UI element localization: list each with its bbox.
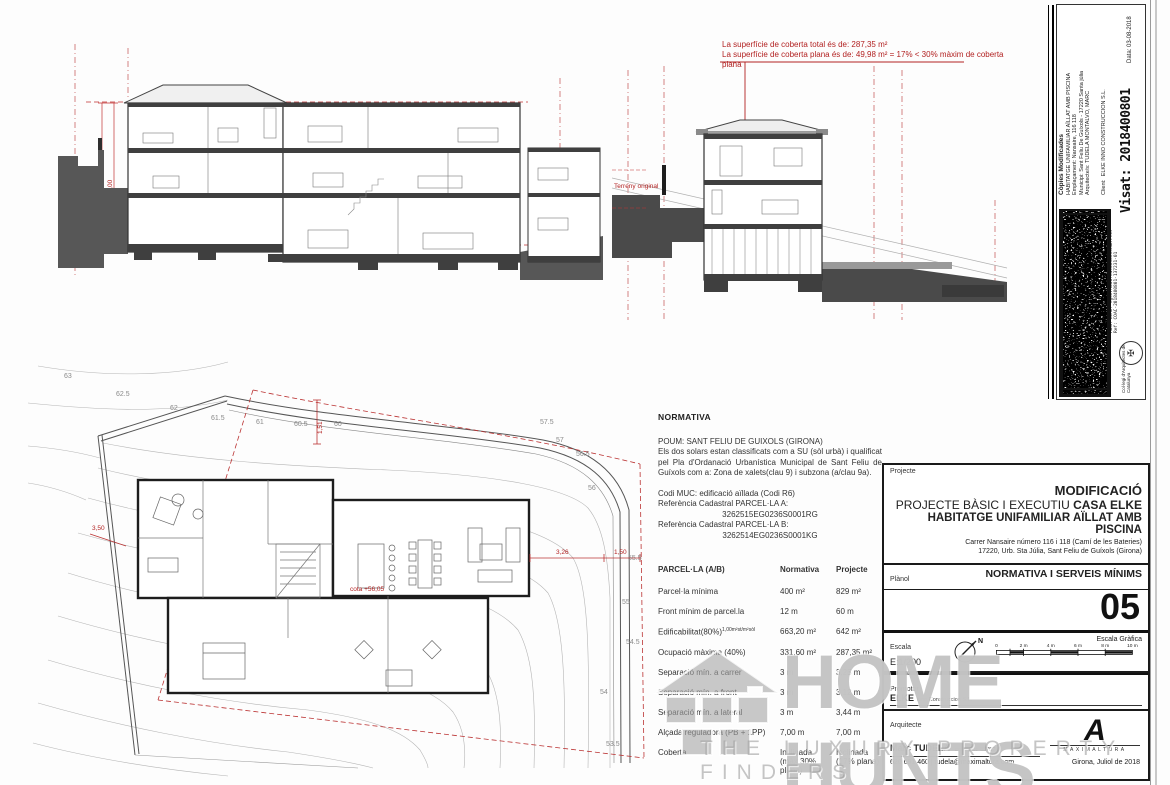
svg-text:4 m: 4 m xyxy=(1047,643,1055,649)
table-row: Ocupació màxima (40%)331,60 m²287,35 m² xyxy=(658,648,884,657)
contour-label: 61 xyxy=(256,419,264,426)
ref-cadastral-a-value: 3262515EG0236S0001RG xyxy=(658,510,882,521)
contour-label: 60 xyxy=(334,421,342,428)
section-drawing-left: ARM:7,00 AM:7,00 xyxy=(58,38,603,338)
arquitecte-contact: 620 691 460 | tudela@maximaltura.com xyxy=(890,759,1014,766)
escala-label: Escala xyxy=(890,644,911,651)
svg-text:0: 0 xyxy=(995,643,998,649)
graphic-scale-bar: 0 2 m 4 m 6 m 8 m 10 m xyxy=(990,641,1142,663)
table-row: Separació mín. a lateral3 m3,44 m xyxy=(658,708,884,717)
contour-label: 62.5 xyxy=(116,391,130,398)
sheet-border xyxy=(1155,0,1157,785)
sheet: ARM:7,00 AM:7,00 xyxy=(0,0,1170,785)
table-row: Parcel·la mínima400 m²829 m² xyxy=(658,587,884,596)
maximaltura-logo: A MAXIMALTURA xyxy=(1050,717,1140,753)
terreny-original-label: Terreny original xyxy=(614,183,659,190)
house-footprint xyxy=(138,480,529,693)
visat-info: Còpies Modificades HABITATGE UNIFAMILIAR… xyxy=(1059,13,1092,195)
contour-label: 55 xyxy=(622,599,630,606)
normativa-block: NORMATIVA POUM: SANT FELIU DE GUIXOLS (G… xyxy=(658,412,882,541)
projecte-section: Projecte MODIFICACIÓ PROJECTE BÀSIC I EX… xyxy=(884,465,1148,565)
sheet-number: 05 xyxy=(1100,586,1140,628)
title-block: Projecte MODIFICACIÓ PROJECTE BÀSIC I EX… xyxy=(882,463,1150,781)
sheet-number-section: 05 xyxy=(884,590,1148,633)
escala-section: Escala E:1/200 Escala Gràfica N xyxy=(884,633,1148,673)
coberta-line2: La superfície de coberta plana és de: 49… xyxy=(722,50,1012,70)
visat-data: Data: 03-08-2018 xyxy=(1127,16,1133,63)
terrain-left xyxy=(612,195,704,258)
contour-label: 54.5 xyxy=(626,639,640,646)
contour-label: 54 xyxy=(600,689,608,696)
svg-text:N: N xyxy=(978,638,983,645)
contour-label: 57.5 xyxy=(540,419,554,426)
ref-cadastral-a-label: Referència Cadastral PARCEL·LA A: xyxy=(658,499,882,510)
planol-label: Plànol xyxy=(890,576,909,583)
escala-value: E:1/200 xyxy=(890,657,921,667)
table-header-row: PARCEL·LA (A/B) Normativa Projecte xyxy=(658,565,884,574)
contour-label: 56.5 xyxy=(576,451,590,458)
arquitecte-label: Arquitecte xyxy=(890,722,922,729)
dim-left: 3,50 xyxy=(92,525,105,532)
title-block-date: Girona, Juliol de 2018 xyxy=(1072,759,1140,766)
contour-label: 61.5 xyxy=(211,415,225,422)
promotor-name: ELKE Inno Construccion S.L. xyxy=(890,693,972,703)
section-drawing-right: Terreny original xyxy=(612,30,1012,330)
table-row: Front mínim de parcel.la12 m60 m xyxy=(658,607,884,616)
table-row: Separació mín. a carrer3 m3,25 m xyxy=(658,668,884,677)
svg-text:2 m: 2 m xyxy=(1020,643,1028,649)
col-normativa: Normativa xyxy=(780,565,836,574)
contour-label: 56 xyxy=(588,485,596,492)
project-title-1: MODIFICACIÓ xyxy=(890,483,1142,498)
col-parcella: PARCEL·LA (A/B) xyxy=(658,565,780,574)
contour-label: 55.5 xyxy=(628,555,642,562)
contour-label: 53.5 xyxy=(606,741,620,748)
promotor-section: Promotor ELKE Inno Construccion S.L. xyxy=(884,673,1148,711)
table-row: Separació mín. a front3 m3,12 m xyxy=(658,688,884,697)
dim-top: 1,51 xyxy=(317,421,324,434)
parameters-table: PARCEL·LA (A/B) Normativa Projecte Parce… xyxy=(658,565,884,785)
coac-seal-icon: ✠ xyxy=(1119,341,1143,365)
arquitecte-name: Marc TUDELA col·legiat: 63752-1 xyxy=(890,743,1000,753)
dim-right-b: 1,50 xyxy=(614,549,627,556)
project-title-2: PROJECTE BÀSIC I EXECUTIU CASA ELKE xyxy=(890,498,1142,512)
table-row: Alçada reguladora (PB + 1PP)7,00 m7,00 m xyxy=(658,728,884,737)
coberta-line1: La superfície de coberta total és de: 28… xyxy=(722,40,1012,50)
normativa-heading: NORMATIVA xyxy=(658,412,882,423)
dim-right-a: 3,26 xyxy=(556,549,569,556)
arquitecte-section: Arquitecte Marc TUDELA col·legiat: 63752… xyxy=(884,711,1148,779)
coberta-annotation: La superfície de coberta total és de: 28… xyxy=(722,40,1012,70)
visat-strip: Còpies Modificades HABITATGE UNIFAMILIAR… xyxy=(1056,4,1146,400)
svg-text:6 m: 6 m xyxy=(1074,643,1082,649)
cota-label: cota +56,05 xyxy=(350,586,385,593)
site-plan: 3,26 1,50 1,51 3,50 cota +56,05 63 62.5 … xyxy=(28,348,653,783)
contour-label: 63 xyxy=(64,373,72,380)
svg-text:10 m: 10 m xyxy=(1127,643,1138,649)
normativa-codi-muc: Codi MUC: edificació aïllada (Codi R6) xyxy=(658,489,882,500)
ref-cadastral-b-label: Referència Cadastral PARCEL·LA B: xyxy=(658,520,882,531)
planol-value: NORMATIVA I SERVEIS MÍNIMS xyxy=(985,568,1142,580)
visat-number: Visat: 2018400801 xyxy=(1119,88,1134,213)
normativa-paragraph: Els dos solars estan classificats com a … xyxy=(658,447,882,479)
project-title-3: HABITATGE UNIFAMILIAR AÏLLAT AMB PISCINA xyxy=(890,512,1142,536)
normativa-poum: POUM: SANT FELIU DE GUIXOLS (GIRONA) xyxy=(658,437,882,448)
contour-label: 57 xyxy=(556,437,564,444)
svg-text:8 m: 8 m xyxy=(1101,643,1109,649)
projecte-label: Projecte xyxy=(890,468,1142,475)
north-arrow-icon: N xyxy=(952,635,986,665)
promotor-label: Promotor xyxy=(890,686,919,693)
sheet-border xyxy=(1150,0,1151,785)
project-address: Carrer Nansaire número 116 i 118 (Camí d… xyxy=(890,538,1142,556)
contour-label: 62 xyxy=(170,405,178,412)
visat-barcode xyxy=(1059,209,1111,397)
table-row: Edificabilitat(80%)1,00m²st/m²sòl663,20 … xyxy=(658,627,884,637)
visat-client: Client: ELKE INNO CONSTRUCCION S.L. xyxy=(1101,89,1107,195)
terrain-left xyxy=(58,150,128,268)
col-projecte: Projecte xyxy=(836,565,884,574)
ref-cadastral-b-value: 3262514EG0236S0001KG xyxy=(658,531,882,542)
table-row: Coberta Inclinada(màx 30% plana) Inclina… xyxy=(658,748,884,775)
contour-label: 60.5 xyxy=(294,421,308,428)
